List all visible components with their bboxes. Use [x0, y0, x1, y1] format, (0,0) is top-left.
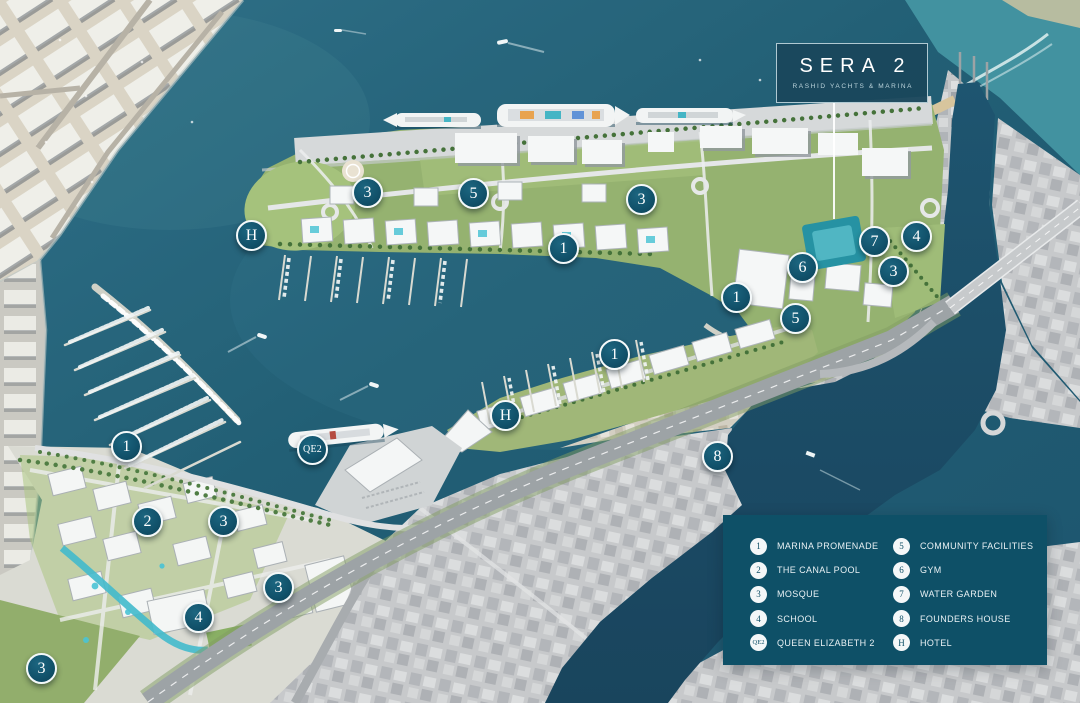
project-logo-card: SERA 2 RASHID YACHTS & MARINA — [776, 43, 928, 103]
map-marker-label: 5 — [792, 311, 800, 327]
map-marker-label: 3 — [220, 514, 228, 530]
map-marker-4[interactable]: 4 — [901, 221, 932, 252]
project-title: SERA 2 — [777, 55, 927, 78]
legend-item-3: 3MOSQUE — [750, 582, 878, 606]
map-marker-8[interactable]: 8 — [702, 441, 733, 472]
map-marker-3[interactable]: 3 — [26, 653, 57, 684]
map-marker-label: 8 — [714, 449, 722, 465]
map-marker-2[interactable]: 2 — [132, 506, 163, 537]
legend-badge-2: 2 — [750, 562, 767, 579]
legend-label: COMMUNITY FACILITIES — [920, 541, 1033, 551]
legend-label: MARINA PROMENADE — [777, 541, 878, 551]
masterplan-map: 35H137463151HQE21823343 SERA 2 RASHID YA… — [0, 0, 1080, 703]
map-marker-label: H — [246, 228, 258, 244]
map-marker-label: 1 — [733, 290, 741, 306]
legend-label: GYM — [920, 565, 942, 575]
map-marker-h[interactable]: H — [236, 220, 267, 251]
map-marker-1[interactable]: 1 — [548, 233, 579, 264]
legend-item-h: HHOTEL — [893, 631, 1033, 655]
legend-label: WATER GARDEN — [920, 589, 997, 599]
map-marker-3[interactable]: 3 — [208, 506, 239, 537]
legend-item-4: 4SCHOOL — [750, 607, 878, 631]
map-marker-1[interactable]: 1 — [721, 282, 752, 313]
legend-column-2: 5COMMUNITY FACILITIES6GYM7WATER GARDEN8F… — [893, 534, 1033, 655]
legend-item-7: 7WATER GARDEN — [893, 582, 1033, 606]
map-marker-label: 3 — [890, 264, 898, 280]
map-marker-label: 1 — [123, 439, 131, 455]
legend-badge-h: H — [893, 634, 910, 651]
map-marker-label: QE2 — [303, 445, 322, 455]
legend-badge-1: 1 — [750, 538, 767, 555]
legend-badge-6: 6 — [893, 562, 910, 579]
legend-badge-8: 8 — [893, 610, 910, 627]
map-marker-label: 1 — [560, 241, 568, 257]
legend-badge-7: 7 — [893, 586, 910, 603]
legend-column-1: 1MARINA PROMENADE2THE CANAL POOL3MOSQUE4… — [750, 534, 878, 655]
legend-badge-5: 5 — [893, 538, 910, 555]
map-marker-label: 1 — [611, 347, 619, 363]
map-marker-label: 4 — [913, 229, 921, 245]
map-marker-6[interactable]: 6 — [787, 252, 818, 283]
map-marker-3[interactable]: 3 — [626, 184, 657, 215]
legend-item-qe2: QE2QUEEN ELIZABETH 2 — [750, 631, 878, 655]
legend-label: THE CANAL POOL — [777, 565, 860, 575]
legend-item-8: 8FOUNDERS HOUSE — [893, 607, 1033, 631]
map-marker-label: 4 — [195, 610, 203, 626]
map-marker-label: 6 — [799, 260, 807, 276]
map-marker-label: 5 — [470, 186, 478, 202]
map-marker-5[interactable]: 5 — [780, 303, 811, 334]
legend-label: HOTEL — [920, 638, 952, 648]
legend-label: SCHOOL — [777, 614, 817, 624]
project-subtitle: RASHID YACHTS & MARINA — [777, 83, 927, 90]
legend-item-1: 1MARINA PROMENADE — [750, 534, 878, 558]
map-marker-label: 3 — [275, 580, 283, 596]
map-marker-7[interactable]: 7 — [859, 226, 890, 257]
legend-badge-4: 4 — [750, 610, 767, 627]
map-marker-label: 3 — [638, 192, 646, 208]
legend-badge-qe2: QE2 — [750, 634, 767, 651]
map-marker-4[interactable]: 4 — [183, 602, 214, 633]
map-marker-3[interactable]: 3 — [352, 177, 383, 208]
map-marker-1[interactable]: 1 — [599, 339, 630, 370]
legend-item-5: 5COMMUNITY FACILITIES — [893, 534, 1033, 558]
map-marker-3[interactable]: 3 — [878, 256, 909, 287]
map-marker-label: 3 — [364, 185, 372, 201]
map-marker-1[interactable]: 1 — [111, 431, 142, 462]
map-marker-qe2[interactable]: QE2 — [297, 434, 328, 465]
legend-label: FOUNDERS HOUSE — [920, 614, 1011, 624]
map-marker-label: 7 — [871, 234, 879, 250]
map-marker-label: 2 — [144, 514, 152, 530]
legend-badge-3: 3 — [750, 586, 767, 603]
logo-leader-line — [833, 103, 835, 219]
map-marker-h[interactable]: H — [490, 400, 521, 431]
map-marker-3[interactable]: 3 — [263, 572, 294, 603]
legend-label: MOSQUE — [777, 589, 819, 599]
map-marker-5[interactable]: 5 — [458, 178, 489, 209]
legend-item-2: 2THE CANAL POOL — [750, 558, 878, 582]
map-legend: 1MARINA PROMENADE2THE CANAL POOL3MOSQUE4… — [723, 515, 1047, 665]
map-marker-label: 3 — [38, 661, 46, 677]
legend-item-6: 6GYM — [893, 558, 1033, 582]
legend-label: QUEEN ELIZABETH 2 — [777, 638, 875, 648]
map-marker-label: H — [500, 408, 512, 424]
